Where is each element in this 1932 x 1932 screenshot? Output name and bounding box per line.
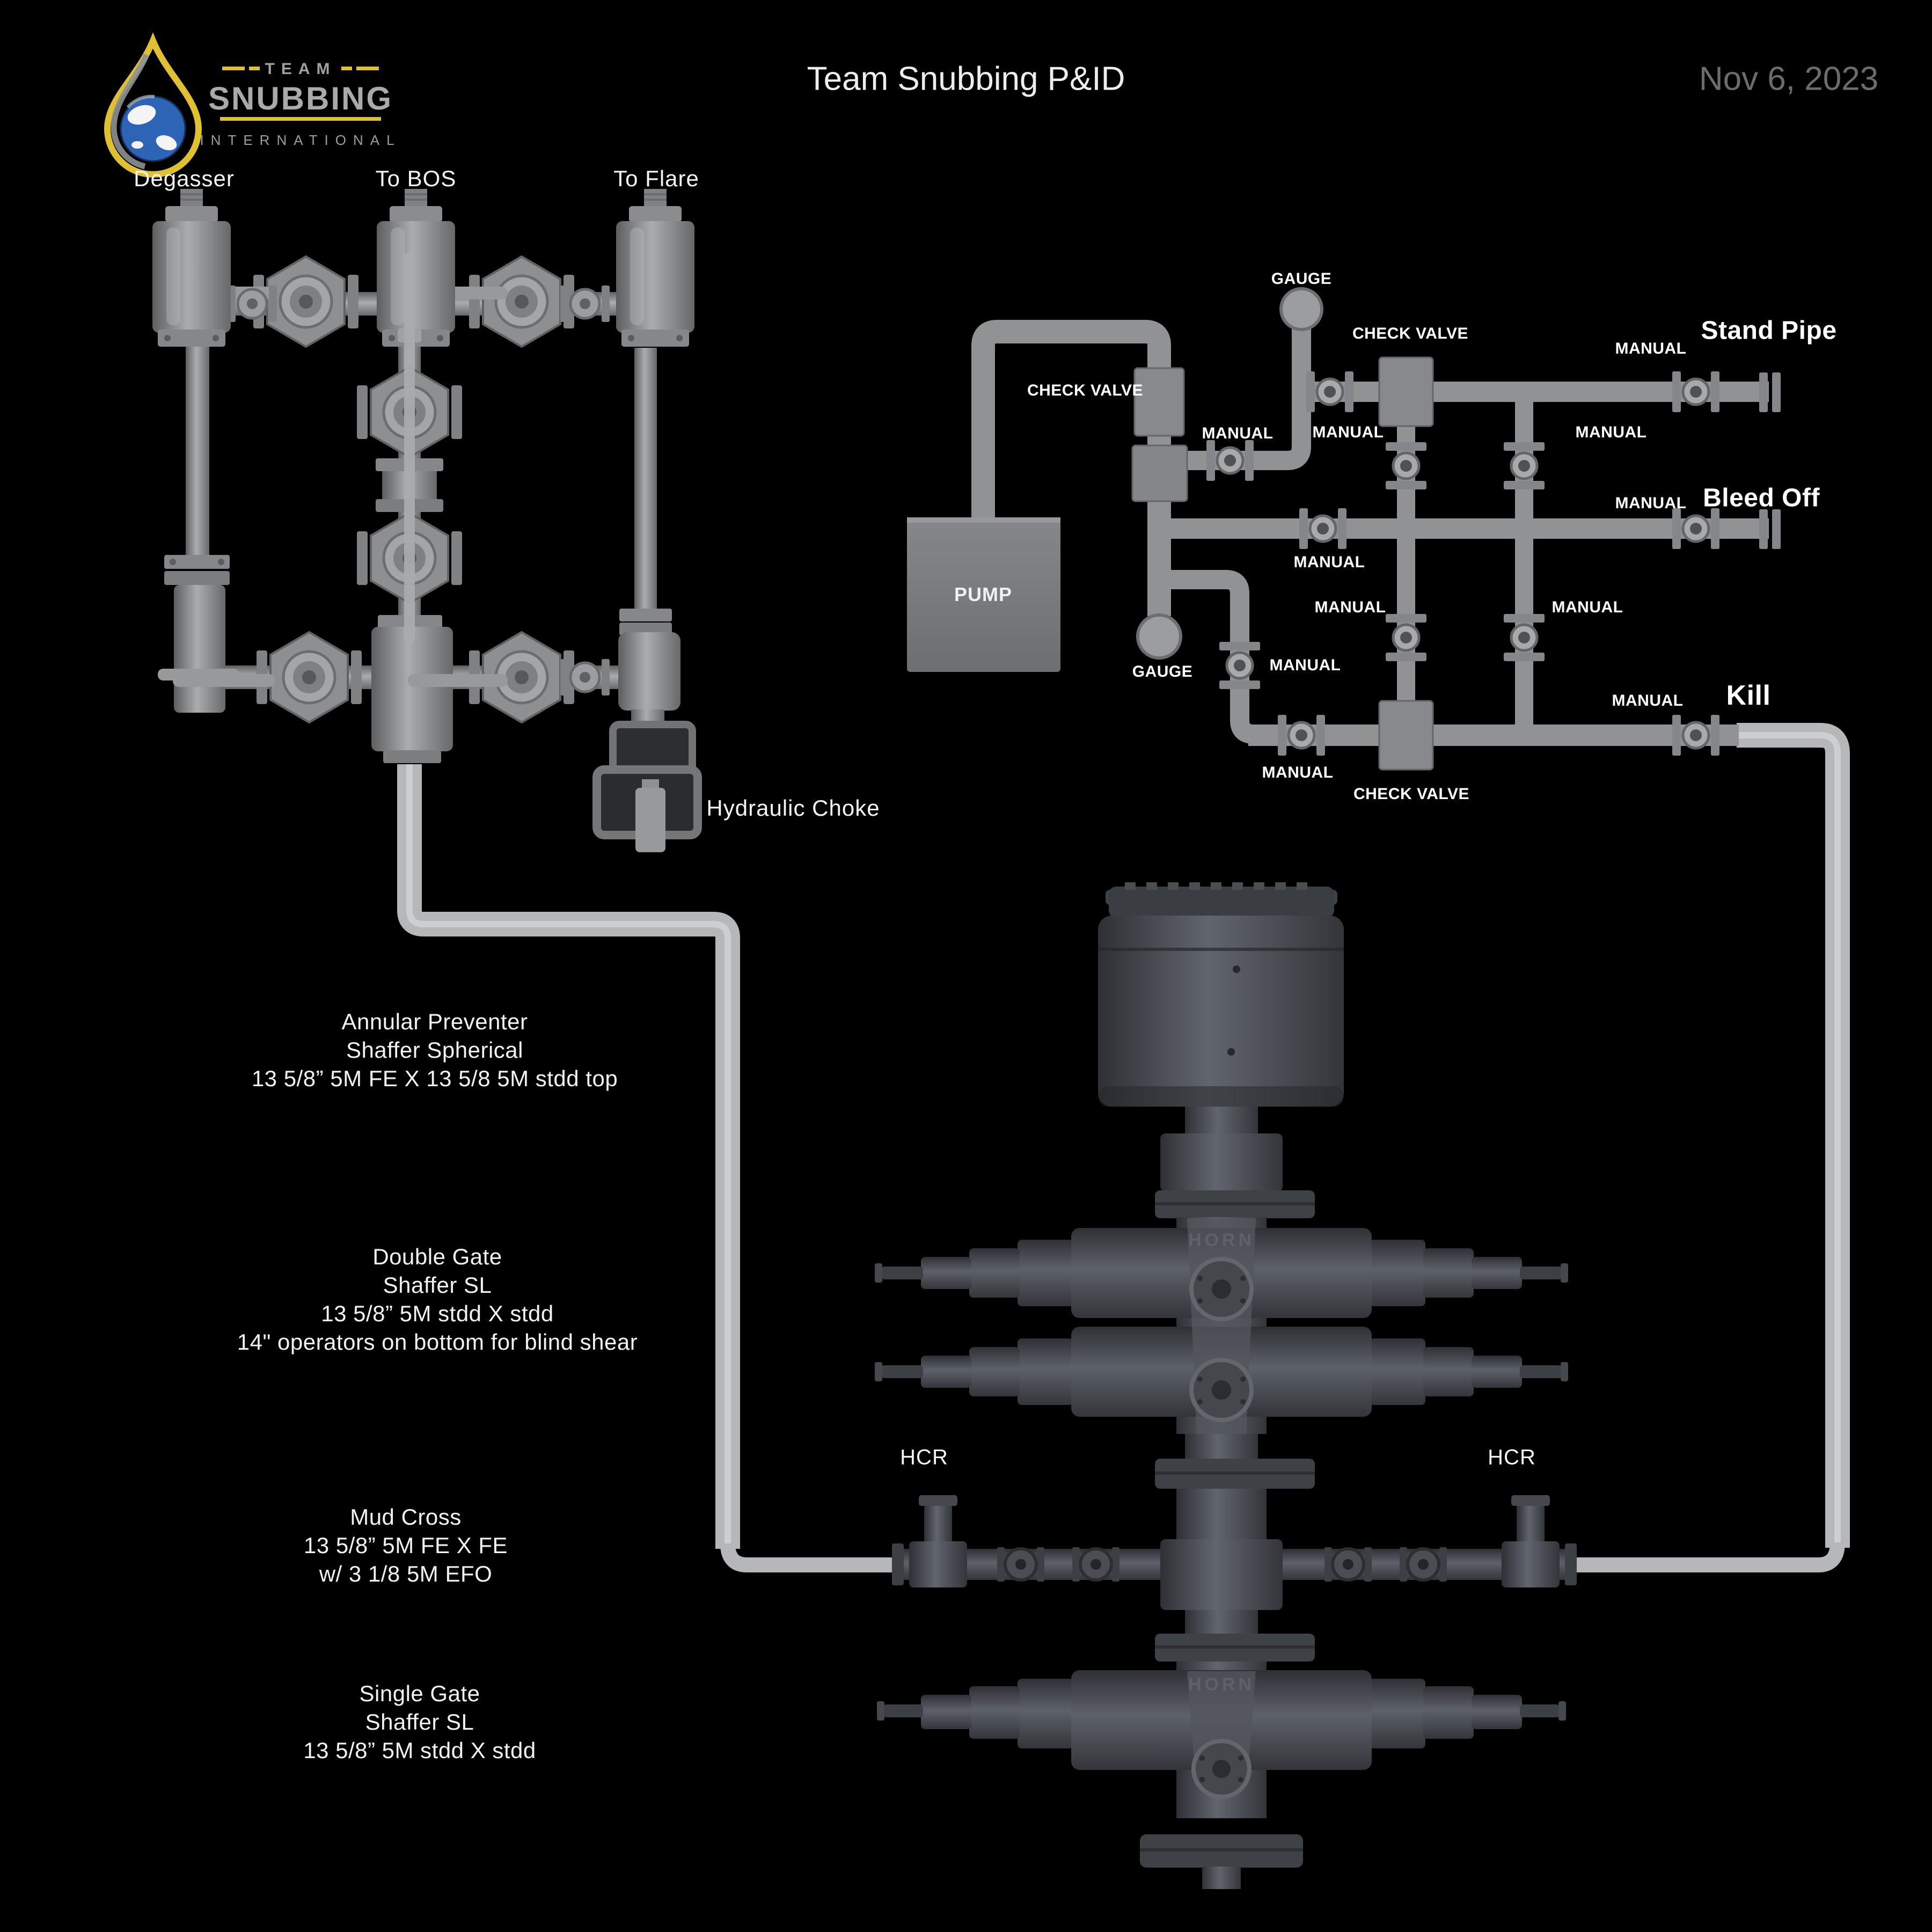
page-title: Team Snubbing P&ID: [807, 60, 1125, 98]
note-line: Double Gate: [237, 1242, 638, 1271]
label-manual-kill-left: MANUAL: [1262, 764, 1334, 782]
label-manual-stub: MANUAL: [1202, 425, 1274, 443]
label-stand-pipe: Stand Pipe: [1701, 316, 1836, 346]
note-line: Shaffer SL: [237, 1271, 638, 1299]
label-layer: Team Snubbing P&ID Nov 6, 2023 Degasser …: [0, 0, 1932, 1932]
label-check-valve-pump: CHECK VALVE: [1027, 382, 1143, 400]
label-hcr-left: HCR: [900, 1446, 948, 1470]
page-date: Nov 6, 2023: [1699, 60, 1878, 98]
note-double-gate: Double Gate Shaffer SL 13 5/8” 5M stdd X…: [237, 1242, 638, 1356]
note-line: 13 5/8” 5M FE X 13 5/8 5M stdd top: [252, 1064, 618, 1093]
note-line: Mud Cross: [304, 1503, 508, 1531]
note-line: Shaffer Spherical: [252, 1036, 618, 1064]
pid-page: HORN: [0, 0, 1932, 1932]
label-manual-v4-upper: MANUAL: [1576, 423, 1647, 442]
label-degasser: Degasser: [134, 166, 235, 192]
label-to-flare: To Flare: [613, 166, 699, 192]
label-bleed-off: Bleed Off: [1703, 484, 1820, 513]
label-manual-bleed-left: MANUAL: [1294, 553, 1365, 572]
note-line: 13 5/8” 5M FE X FE: [304, 1531, 508, 1560]
label-manual-v3-lower: MANUAL: [1315, 598, 1386, 617]
label-manual-standpipe-end: MANUAL: [1615, 340, 1687, 358]
label-gauge-top: GAUGE: [1271, 270, 1332, 288]
note-single-gate: Single Gate Shaffer SL 13 5/8” 5M stdd X…: [303, 1679, 536, 1765]
label-manual-v1c: MANUAL: [1270, 656, 1341, 675]
note-mud-cross: Mud Cross 13 5/8” 5M FE X FE w/ 3 1/8 5M…: [304, 1503, 508, 1588]
label-pump: PUMP: [954, 583, 1012, 606]
note-annular-preventer: Annular Preventer Shaffer Spherical 13 5…: [252, 1007, 618, 1093]
label-to-bos: To BOS: [376, 166, 457, 192]
label-gauge-bottom: GAUGE: [1132, 663, 1193, 681]
note-line: Single Gate: [303, 1679, 536, 1708]
label-kill: Kill: [1726, 679, 1771, 712]
note-line: 14" operators on bottom for blind shear: [237, 1328, 638, 1356]
note-line: Shaffer SL: [303, 1708, 536, 1736]
label-manual-bleed-end: MANUAL: [1615, 494, 1687, 513]
note-line: w/ 3 1/8 5M EFO: [304, 1560, 508, 1588]
label-check-valve-kill: CHECK VALVE: [1353, 785, 1469, 803]
label-hcr-right: HCR: [1488, 1446, 1536, 1470]
note-line: Annular Preventer: [252, 1007, 618, 1036]
label-manual-kill-end: MANUAL: [1612, 692, 1684, 710]
label-manual-v4-lower: MANUAL: [1552, 598, 1623, 617]
label-manual-v3-upper: MANUAL: [1313, 423, 1384, 442]
note-line: 13 5/8” 5M stdd X stdd: [303, 1736, 536, 1765]
label-hydraulic-choke: Hydraulic Choke: [706, 795, 880, 821]
note-line: 13 5/8” 5M stdd X stdd: [237, 1299, 638, 1328]
label-check-valve-standpipe: CHECK VALVE: [1352, 325, 1468, 343]
